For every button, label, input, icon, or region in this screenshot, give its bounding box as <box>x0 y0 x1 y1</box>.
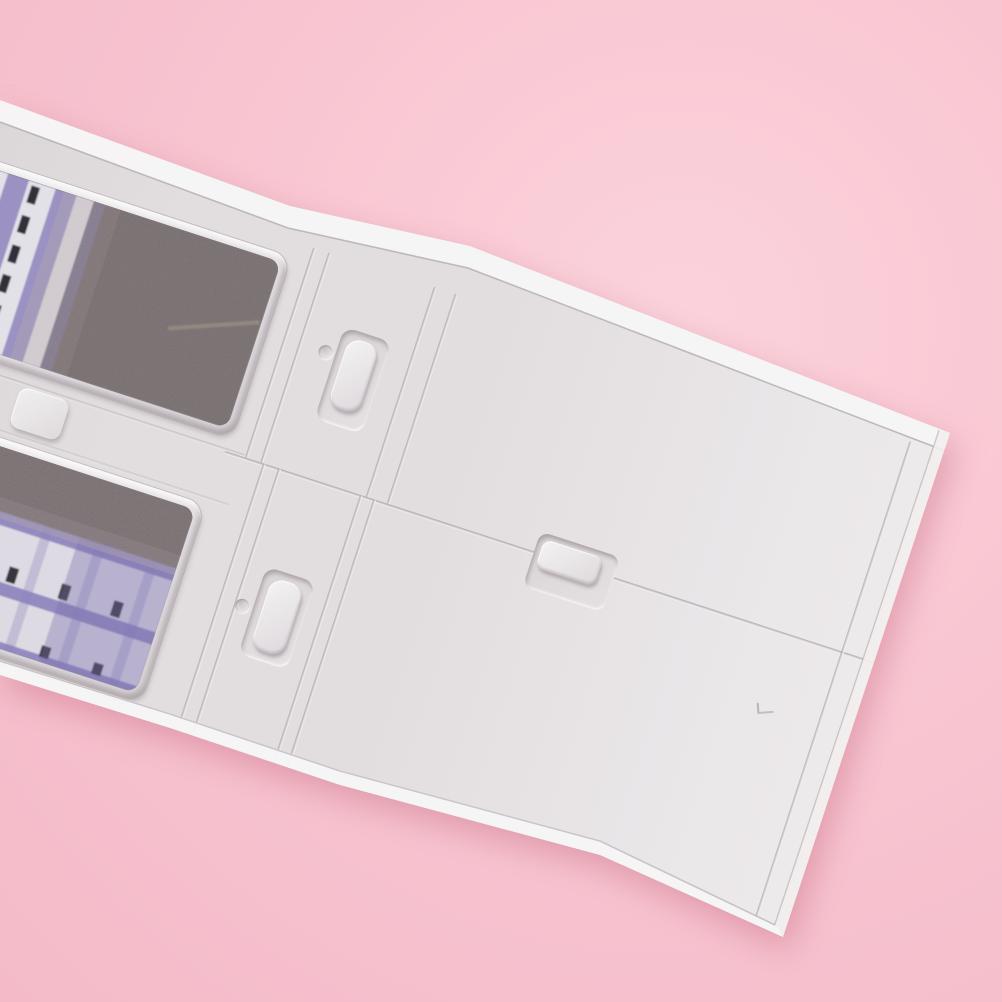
scratch-mark <box>757 702 774 714</box>
molded-dimple-upper <box>317 343 335 361</box>
product-silhouette <box>0 0 1002 1002</box>
upper-window-print-graphic <box>0 81 281 429</box>
edge-groove <box>750 441 913 935</box>
product-photo <box>0 0 1002 1002</box>
upper-display-window-frame <box>0 71 291 439</box>
model-panel-plane <box>0 0 1002 1000</box>
upper-display-window-print <box>0 81 281 429</box>
photo-background <box>0 0 1002 1002</box>
